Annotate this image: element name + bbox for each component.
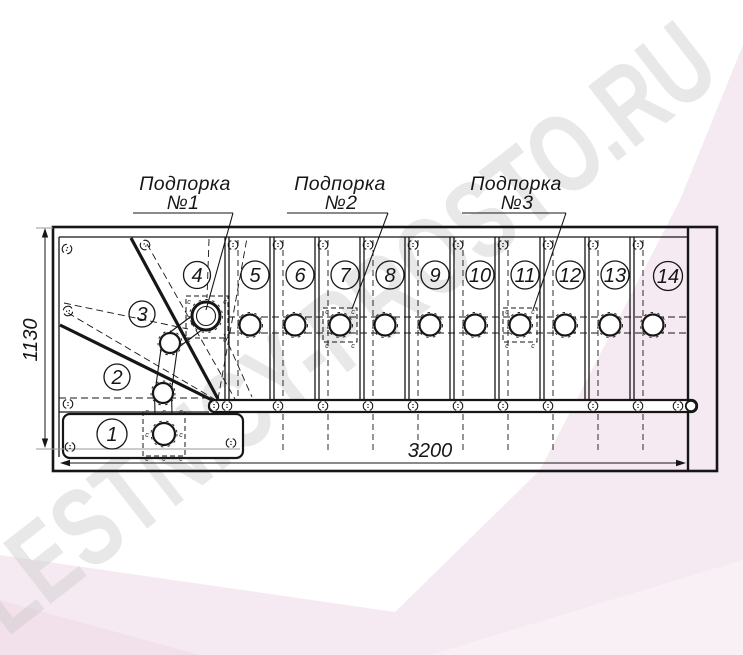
support-post-1: [192, 302, 220, 330]
fastener-mark: c: [223, 299, 227, 306]
height-dimension-value: 1130: [20, 318, 42, 361]
fastener-mark: c: [505, 309, 509, 316]
step-number-1: 1: [106, 424, 117, 446]
fastener-mark: c: [531, 309, 535, 316]
fastener-mark: c: [162, 409, 166, 416]
fastener-mark: c: [145, 456, 149, 463]
staircase-drawing-page: LESTNICY-PROSTO.RU: [0, 0, 743, 655]
fastener-mark: c: [505, 343, 509, 350]
fastener-mark: c: [179, 432, 183, 439]
step-number-2: 2: [110, 367, 122, 389]
fastener-mark: c: [325, 309, 329, 316]
fastener-mark: c: [351, 309, 355, 316]
step-number-12: 12: [559, 265, 581, 287]
fastener-mark: c: [325, 343, 329, 350]
fastener-mark: c: [187, 337, 191, 344]
step-number-6: 6: [294, 265, 306, 287]
fastener-mark: c: [223, 337, 227, 344]
step-number-5: 5: [249, 265, 261, 287]
support-3-number: №3: [501, 192, 534, 214]
fastener-mark: c: [531, 343, 535, 350]
step-number-10: 10: [469, 265, 491, 287]
fastener-mark: c: [187, 299, 191, 306]
step-number-8: 8: [384, 265, 395, 287]
support-1-number: №1: [167, 192, 200, 214]
step-number-9: 9: [429, 265, 440, 287]
step-number-7: 7: [339, 265, 351, 287]
step-number-11: 11: [515, 265, 536, 287]
fastener-mark: c: [179, 409, 183, 416]
fastener-mark: c: [145, 432, 149, 439]
width-dimension-value: 3200: [408, 440, 453, 462]
fastener-mark: c: [145, 409, 149, 416]
step-number-14: 14: [657, 266, 679, 288]
fastener-mark: c: [351, 343, 355, 350]
step-number-4: 4: [191, 265, 202, 287]
fastener-mark: c: [179, 456, 183, 463]
fastener-mark: c: [162, 456, 166, 463]
support-2-number: №2: [325, 192, 358, 214]
step-number-3: 3: [136, 304, 147, 326]
step-number-13: 13: [604, 265, 626, 287]
rail-end-cap: [686, 401, 696, 411]
